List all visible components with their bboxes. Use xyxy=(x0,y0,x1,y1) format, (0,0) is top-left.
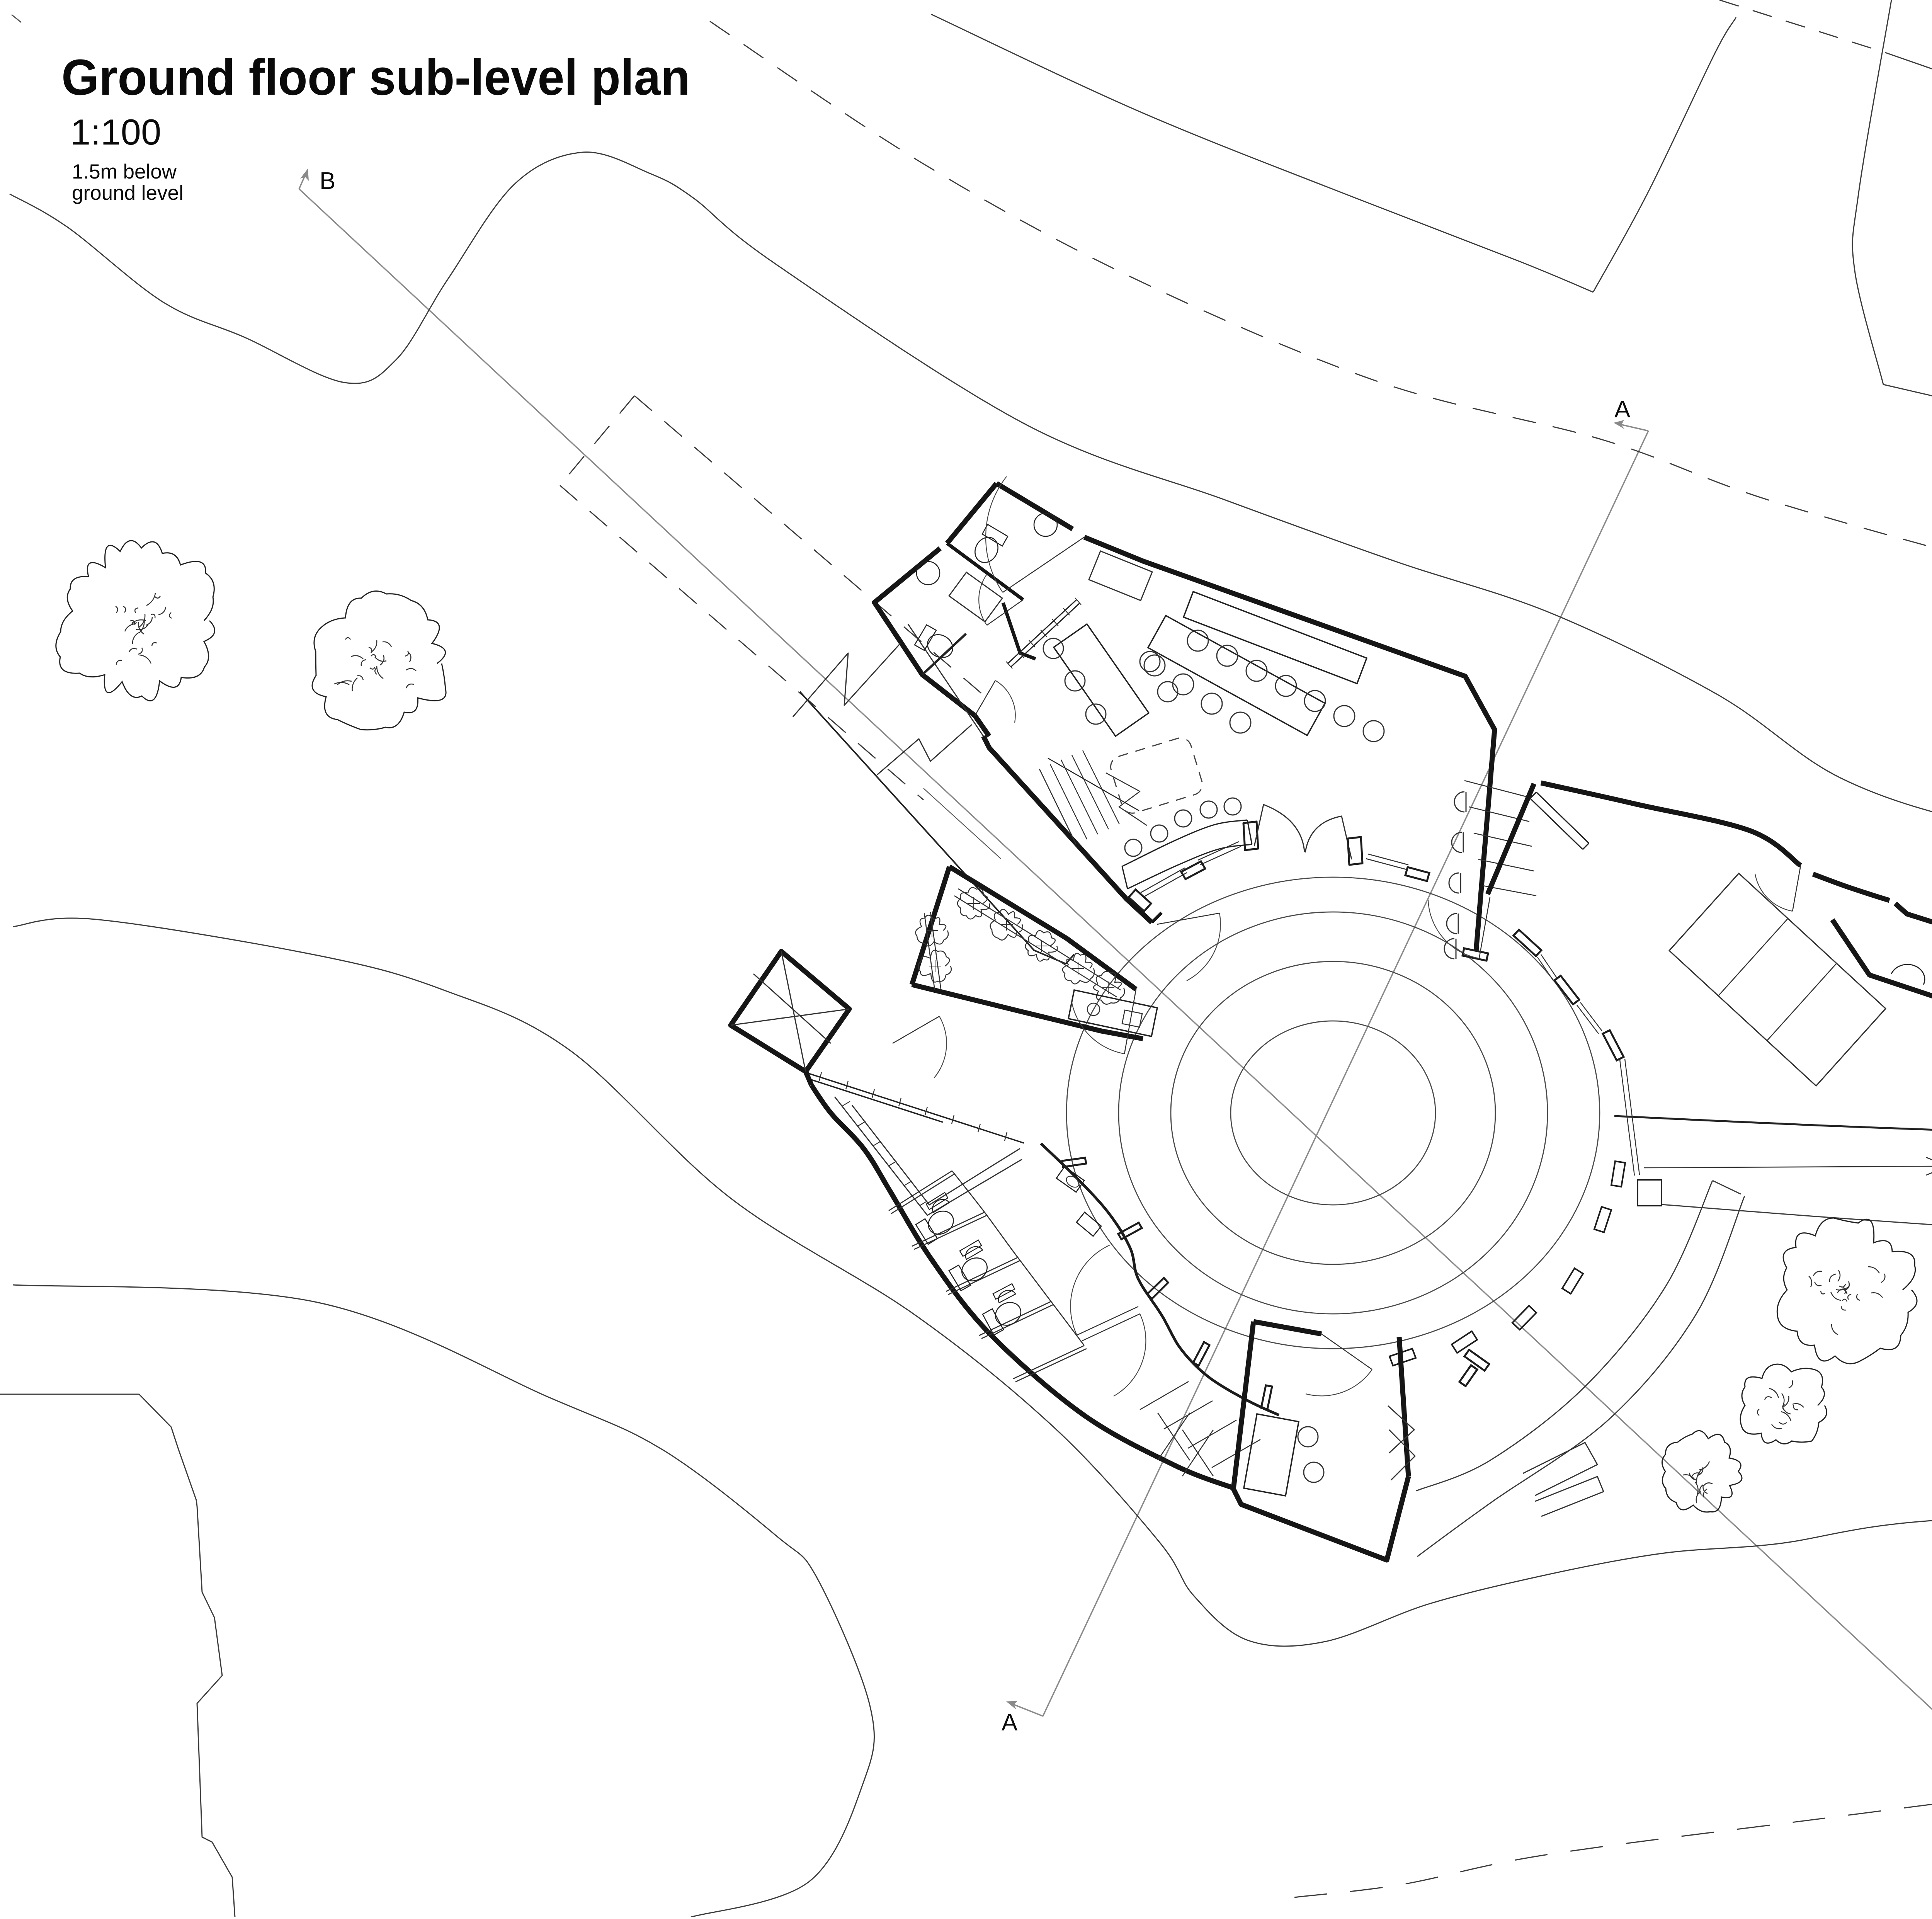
svg-text:Ground floor sub-level plan: Ground floor sub-level plan xyxy=(61,49,690,105)
svg-text:ground level: ground level xyxy=(72,182,184,204)
svg-text:A: A xyxy=(1614,396,1631,423)
svg-text:1.5m below: 1.5m below xyxy=(72,160,177,183)
svg-text:B: B xyxy=(320,168,335,194)
svg-text:1:100: 1:100 xyxy=(70,112,161,152)
svg-text:A: A xyxy=(1002,1709,1018,1736)
